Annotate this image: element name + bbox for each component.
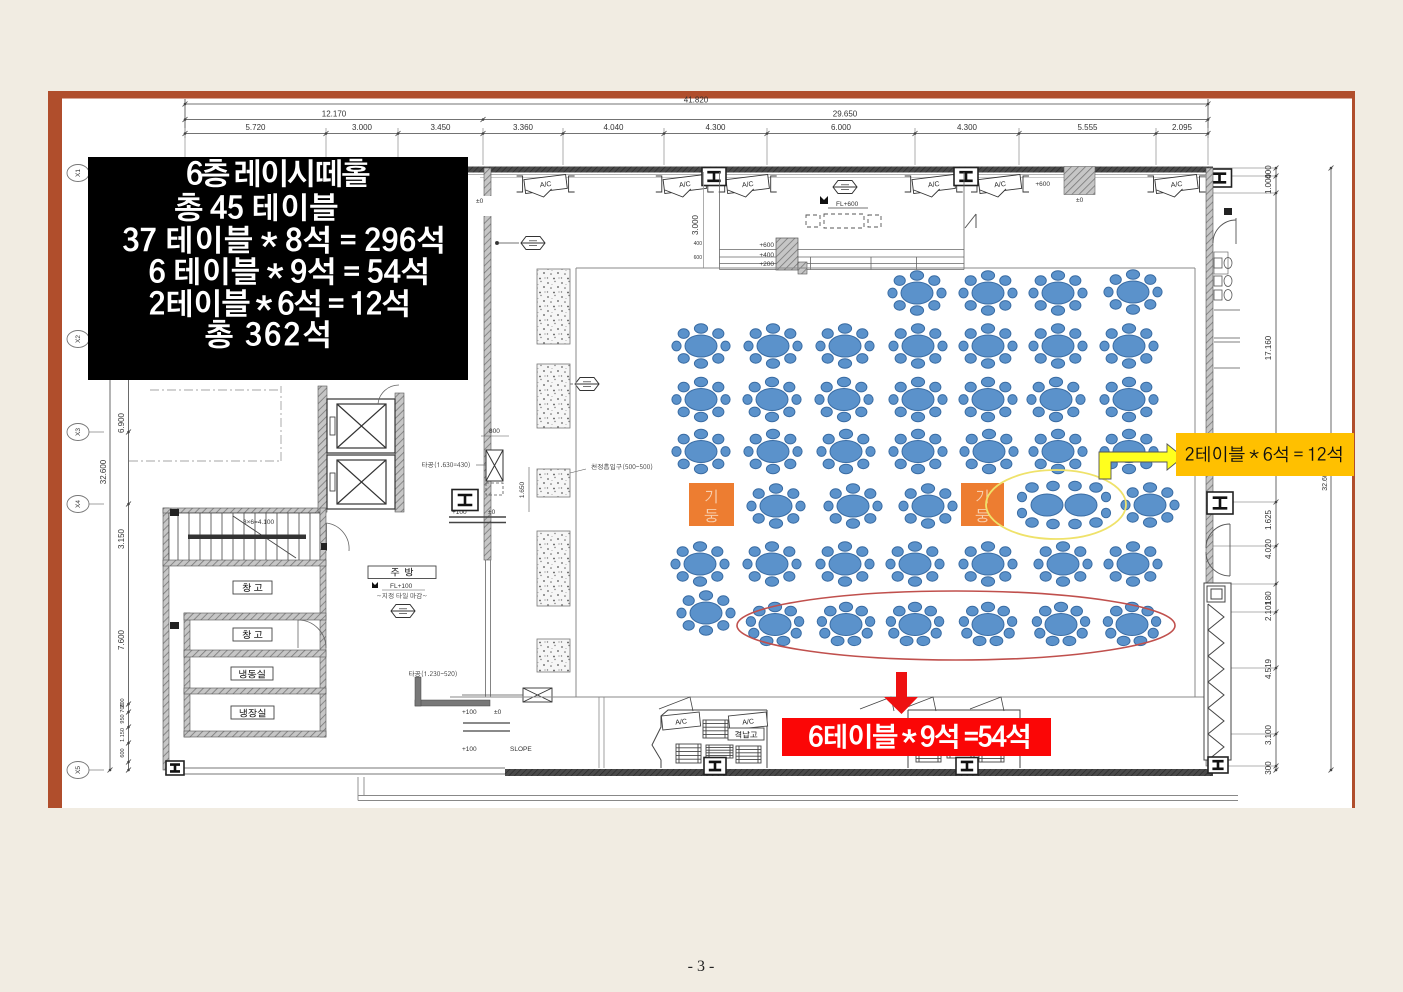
svg-text:+100: +100 — [462, 709, 477, 716]
svg-text:X1: X1 — [75, 169, 82, 177]
svg-text:1.000: 1.000 — [1264, 173, 1273, 194]
svg-text:A/C: A/C — [742, 718, 754, 726]
svg-text:1.625: 1.625 — [1264, 509, 1273, 530]
svg-text:FL+600: FL+600 — [836, 201, 859, 208]
svg-text:±0: ±0 — [488, 509, 496, 516]
svg-text:- 3 -: - 3 - — [688, 958, 715, 975]
svg-text:+400: +400 — [759, 252, 774, 259]
svg-text:6.000: 6.000 — [831, 123, 852, 132]
svg-text:+100: +100 — [462, 746, 477, 753]
svg-text:5.720: 5.720 — [245, 123, 266, 132]
svg-text:17.160: 17.160 — [1264, 335, 1273, 360]
svg-text:±0: ±0 — [476, 198, 484, 205]
svg-text:+200: +200 — [759, 261, 774, 268]
svg-text:4.300: 4.300 — [957, 123, 978, 132]
svg-text:600: 600 — [694, 255, 703, 261]
svg-text:±0: ±0 — [494, 709, 502, 716]
svg-text:A/C: A/C — [742, 181, 754, 189]
svg-text:800: 800 — [489, 428, 500, 435]
svg-text:400: 400 — [694, 241, 703, 247]
svg-text:X3: X3 — [75, 428, 82, 436]
svg-text:2.095: 2.095 — [1172, 123, 1193, 132]
svg-text:3.360: 3.360 — [513, 123, 534, 132]
svg-text:4.040: 4.040 — [603, 123, 624, 132]
svg-text:29.650: 29.650 — [833, 110, 858, 119]
svg-text:700: 700 — [120, 703, 126, 712]
svg-text:±0: ±0 — [1076, 197, 1084, 204]
svg-text:X5: X5 — [75, 766, 82, 774]
svg-text:3.150: 3.150 — [117, 528, 126, 549]
svg-text:600: 600 — [120, 748, 126, 757]
svg-text:2.101: 2.101 — [1264, 600, 1273, 621]
svg-text:SLOPE: SLOPE — [510, 746, 532, 753]
svg-text:+600: +600 — [1035, 181, 1050, 188]
svg-text:7.600: 7.600 — [117, 629, 126, 650]
svg-text:A/C: A/C — [540, 181, 552, 189]
svg-text:A/C: A/C — [928, 181, 940, 189]
svg-text:+600: +600 — [759, 242, 774, 249]
svg-text:12.170: 12.170 — [322, 110, 347, 119]
svg-text:32.600: 32.600 — [99, 459, 108, 484]
svg-text:FL+100: FL+100 — [390, 583, 413, 590]
svg-text:X4: X4 — [75, 500, 82, 508]
svg-text:A/C: A/C — [994, 181, 1006, 189]
svg-text:41.820: 41.820 — [684, 96, 709, 105]
svg-text:3.000: 3.000 — [352, 123, 373, 132]
svg-text:5.555: 5.555 — [1077, 123, 1098, 132]
svg-text:A/C: A/C — [1170, 181, 1182, 189]
svg-text:1.650: 1.650 — [519, 481, 526, 498]
svg-text:3.450: 3.450 — [430, 123, 451, 132]
svg-text:3×6=4.100: 3×6=4.100 — [243, 519, 274, 526]
svg-text:950: 950 — [120, 714, 126, 723]
svg-text:3.100: 3.100 — [1264, 724, 1273, 745]
svg-text:4.300: 4.300 — [705, 123, 726, 132]
svg-text:A/C: A/C — [679, 181, 691, 189]
svg-text:6.900: 6.900 — [117, 412, 126, 433]
svg-text:3.000: 3.000 — [691, 214, 700, 235]
svg-text:4.020: 4.020 — [1264, 538, 1273, 559]
svg-text:4.519: 4.519 — [1264, 658, 1273, 679]
svg-text:X2: X2 — [75, 335, 82, 343]
svg-text:A/C: A/C — [675, 718, 687, 726]
svg-text:1.150: 1.150 — [120, 728, 126, 742]
svg-text:300: 300 — [1264, 761, 1273, 775]
